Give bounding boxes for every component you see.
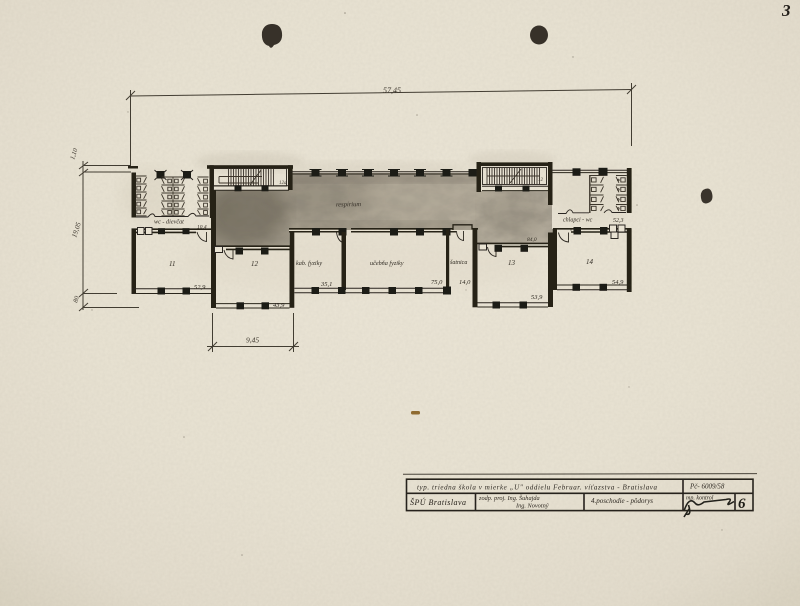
svg-text:75,0: 75,0 — [431, 279, 443, 286]
svg-text:53,9: 53,9 — [531, 294, 543, 301]
svg-text:ŠPÚ Bratislava: ŠPÚ Bratislava — [410, 497, 466, 507]
svg-text:Ing. Novotný: Ing. Novotný — [515, 503, 549, 510]
svg-text:typ. triedna škola v mierke „U: typ. triedna škola v mierke „U" oddielu … — [417, 484, 658, 492]
svg-text:13: 13 — [508, 259, 516, 267]
svg-text:6: 6 — [738, 496, 746, 512]
svg-text:12a: 12a — [279, 181, 287, 186]
svg-text:10,4: 10,4 — [197, 224, 207, 231]
svg-text:šatnica: šatnica — [450, 260, 467, 266]
svg-text:52,9: 52,9 — [194, 284, 206, 291]
svg-text:4.poschodie - pôdorys: 4.poschodie - pôdorys — [591, 497, 653, 505]
svg-text:chlapci - wc: chlapci - wc — [563, 218, 593, 224]
svg-text:54,9: 54,9 — [612, 279, 624, 286]
svg-text:kab. fyziky: kab. fyziky — [296, 260, 322, 267]
svg-text:zodp. proj. Ing. Šuhajda: zodp. proj. Ing. Šuhajda — [478, 494, 540, 502]
svg-text:učebňa fyziky: učebňa fyziky — [370, 260, 404, 267]
svg-text:84,0: 84,0 — [527, 236, 537, 243]
svg-text:12: 12 — [538, 178, 544, 183]
svg-text:35,1: 35,1 — [320, 281, 332, 288]
svg-text:43,9: 43,9 — [273, 302, 285, 309]
svg-text:11: 11 — [169, 260, 175, 268]
svg-text:14: 14 — [586, 258, 594, 266]
svg-text:3: 3 — [781, 1, 791, 20]
svg-text:14,0: 14,0 — [459, 279, 471, 286]
svg-text:respírium: respírium — [336, 201, 361, 208]
svg-text:57,45: 57,45 — [383, 86, 401, 95]
svg-text:12: 12 — [251, 260, 259, 268]
svg-text:wc - dievčat: wc - dievčat — [154, 219, 184, 226]
svg-text:9,45: 9,45 — [246, 336, 259, 345]
svg-text:Pč- 6009/58: Pč- 6009/58 — [689, 483, 725, 491]
svg-text:52,3: 52,3 — [613, 218, 624, 224]
